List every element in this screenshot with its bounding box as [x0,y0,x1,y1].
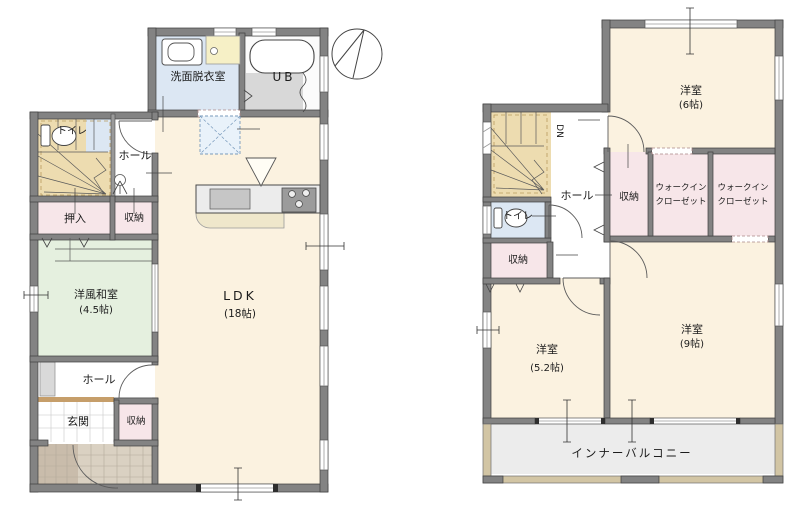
label-storage-mid-2f: 収納 [619,190,639,203]
label-washitsu: 洋風和室 [74,287,118,301]
floor-plan-2f: 洋室 (6帖) DN ホール 収納 ウォークイン クローゼット ウォークイン ク… [477,8,783,483]
room-wic-1 [652,152,712,238]
vanity-counter-icon [206,36,240,64]
label-wic1-line1: ウォークイン [655,183,706,193]
sink-icon [210,189,250,209]
rooms-2f [491,28,775,474]
label-washitsu-size: (4.5帖) [79,303,113,316]
label-ldk: LDK [223,288,257,303]
floor-plan-1f: 洗面脱衣室 UB トイレ ホール 押入 収納 洋風和室 (4.5帖) LDK (… [24,28,344,500]
floor-plan-drawing: 洗面脱衣室 UB トイレ ホール 押入 収納 洋風和室 (4.5帖) LDK (… [0,0,803,517]
label-wic2-line1: ウォークイン [717,183,768,193]
compass-icon [332,29,382,79]
label-toilet-2f: トイレ [503,211,533,222]
label-ldk-size: (18帖) [224,307,256,320]
label-wic1-line2: クローゼット [655,196,706,207]
label-bedroom6-size: (6帖) [679,98,703,111]
label-storage-left-2f: 収納 [508,253,528,266]
porch-light [78,444,158,490]
label-bath: UB [272,70,295,84]
label-hall-2f: ホール [561,189,594,202]
label-bedroom52-size: (5.2帖) [530,361,564,374]
bathtub-icon [250,40,314,73]
label-genkan: 玄関 [67,414,89,428]
label-bedroom52: 洋室 [536,342,558,356]
refrigerator-space-icon [200,116,240,154]
label-oshiire: 押入 [64,211,86,225]
label-washroom: 洗面脱衣室 [171,69,226,83]
label-bedroom9-size: (9帖) [680,337,704,350]
shoe-cabinet [40,362,55,396]
kitchen-ledge [196,213,284,228]
floor-plan-page: 洗面脱衣室 UB トイレ ホール 押入 収納 洋風和室 (4.5帖) LDK (… [0,0,803,517]
label-wic2-line2: クローゼット [717,196,768,207]
genkan-threshold [38,397,114,402]
label-hall-upper: ホール [119,149,152,162]
stove-icon [282,188,316,212]
label-bedroom6: 洋室 [680,83,702,97]
label-toilet-1f: トイレ [57,126,87,137]
label-balcony: インナーバルコニー [571,446,692,460]
label-bedroom9: 洋室 [681,322,703,336]
room-wic-2 [712,152,775,238]
label-storage-mid: 収納 [124,211,144,224]
label-storage-genkan: 収納 [126,415,145,427]
label-stairs-down: DN [554,124,564,138]
label-hall-lower: ホール [83,373,116,386]
